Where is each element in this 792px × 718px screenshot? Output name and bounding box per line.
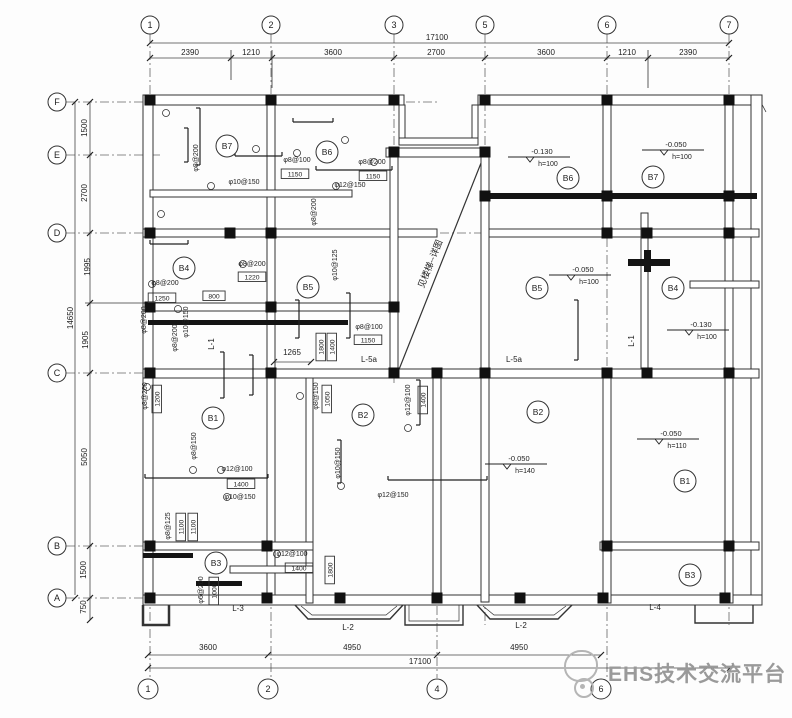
annotation-text: 1500 — [80, 119, 89, 137]
wall — [603, 105, 611, 235]
elevation-depth: h=100 — [579, 279, 599, 286]
elevation-value: -0.050 — [665, 140, 686, 149]
boxed-dim-text: 800 — [208, 294, 220, 301]
annotation-text: φ10@150 — [335, 447, 342, 478]
annotation-text: L-4 — [649, 603, 661, 612]
boxed-dim: 1800 — [325, 556, 335, 584]
porch-outline — [409, 605, 459, 621]
column — [724, 228, 735, 239]
wall — [603, 373, 611, 603]
annotation-text: 4950 — [343, 643, 361, 652]
wall — [472, 105, 478, 143]
elevation-depth: h=100 — [538, 161, 558, 168]
rebar-ref-circle — [297, 393, 304, 400]
elevation-triangle-icon — [526, 157, 534, 162]
annotation-text: φ8@100 — [283, 157, 310, 164]
boxed-dim: 1400 — [327, 333, 337, 361]
boxed-dim: 1150 — [359, 171, 387, 181]
column — [724, 95, 735, 106]
annotation-text: φ8@150 — [191, 432, 198, 459]
annotation-text: L-5a — [506, 355, 523, 364]
annotation-text: φ8@200 — [358, 159, 385, 166]
rebar-ref-circle — [253, 146, 260, 153]
column — [266, 302, 277, 313]
column — [480, 368, 491, 379]
column — [389, 147, 400, 158]
grid-bubble-label: 2 — [268, 20, 273, 30]
column — [225, 228, 236, 239]
wall — [143, 369, 759, 378]
annotation-text: 1995 — [83, 258, 92, 276]
annotation-text: 1210 — [618, 48, 636, 57]
room-label: B1 — [680, 476, 691, 486]
room-label: B3 — [685, 570, 696, 580]
elevation-triangle-icon — [567, 275, 575, 280]
elevation-triangle-icon — [503, 464, 511, 469]
room-label: B5 — [303, 282, 314, 292]
wall — [143, 95, 153, 605]
column — [642, 228, 653, 239]
annotation-text: φ10@125 — [332, 249, 339, 280]
column — [389, 95, 400, 106]
beam-solid — [148, 320, 348, 325]
room-label: B6 — [563, 173, 574, 183]
elevation-triangle-icon — [655, 439, 663, 444]
elevation-value: -0.050 — [572, 265, 593, 274]
room-label: B5 — [532, 283, 543, 293]
wall — [485, 229, 759, 237]
elevation-depth: h=110 — [667, 443, 686, 450]
wall — [399, 138, 478, 145]
boxed-dim-text: 1100 — [179, 519, 186, 534]
annotation-text: φ12@100 — [276, 551, 307, 558]
wall — [386, 148, 489, 157]
annotation-text: φ10@150 — [228, 179, 259, 186]
wall — [267, 105, 275, 595]
annotation-text: 1500 — [79, 561, 88, 579]
annotation-text: 3600 — [199, 643, 217, 652]
annotation-text: L-2 — [515, 621, 527, 630]
wall — [143, 542, 313, 550]
grid-bubble-label: 2 — [265, 684, 270, 694]
column — [602, 95, 613, 106]
column — [432, 368, 443, 379]
column — [515, 593, 526, 604]
column — [432, 593, 443, 604]
annotation-text: 5050 — [80, 448, 89, 466]
annotation-text: 见楼梯--详图 — [415, 238, 444, 289]
annotation-text: 1210 — [242, 48, 260, 57]
grid-bubble-label: E — [54, 150, 60, 160]
annotation-text: 2700 — [80, 184, 89, 202]
annotation-text: 2390 — [181, 48, 199, 57]
column — [145, 95, 156, 106]
boxed-dim-text: 1150 — [288, 172, 303, 179]
annotation-text: φ10@150 — [183, 306, 190, 337]
annotation-text: φ8@200 — [172, 324, 179, 351]
wall — [433, 378, 441, 603]
room-label: B7 — [648, 172, 659, 182]
porch-outline — [143, 605, 169, 625]
annotation-text: φ12@100 — [221, 466, 252, 473]
wall — [725, 105, 733, 603]
rebar-ref-circle — [208, 183, 215, 190]
floor-plan-drawing: 1235671246FEDCBAB7B6B4B5B1B2B3B6B7B5B4B2… — [0, 0, 792, 718]
room-label: B2 — [358, 410, 369, 420]
column — [389, 302, 400, 313]
rebar-ref-circle — [405, 425, 412, 432]
grid-bubble-label: 3 — [391, 20, 396, 30]
boxed-dim: 1100 — [188, 513, 198, 541]
column — [145, 228, 156, 239]
boxed-dim-text: 1400 — [233, 482, 248, 489]
boxed-dim: 1220 — [238, 272, 266, 282]
boxed-dim-text: 1150 — [361, 338, 376, 345]
porch-outline — [301, 606, 397, 615]
elevation-depth: h=140 — [515, 468, 535, 475]
rebar-ref-circle — [294, 150, 301, 157]
grid-bubble-label: C — [54, 368, 61, 378]
annotation-text: 4950 — [510, 643, 528, 652]
structural-plan-canvas: 1235671246FEDCBAB7B6B4B5B1B2B3B6B7B5B4B2… — [0, 0, 792, 718]
watermark: EHS技术交流平台 — [560, 648, 786, 698]
annotation-text: L-3 — [232, 604, 244, 613]
boxed-dim: 1150 — [354, 335, 382, 345]
annotation-text: 17100 — [426, 33, 449, 42]
annotation-text: 1905 — [81, 331, 90, 349]
wall — [399, 105, 405, 143]
boxed-dim: 1400 — [227, 479, 255, 489]
annotation-text: φ8@200 — [311, 198, 318, 225]
wall — [478, 95, 762, 105]
annotation-text: φ6@200 — [198, 576, 205, 603]
boxed-dim-text: 1100 — [191, 519, 198, 534]
annotation-text: 14650 — [66, 306, 75, 329]
elevation-value: -0.050 — [508, 454, 529, 463]
boxed-dim-text: 1800 — [319, 339, 326, 354]
annotation-text: 2700 — [427, 48, 445, 57]
elevation-value: -0.130 — [690, 320, 711, 329]
elevation-triangle-icon — [660, 150, 668, 155]
annotation-text: L-2 — [342, 623, 354, 632]
column — [602, 541, 613, 552]
rebar-ref-circle — [342, 137, 349, 144]
column — [720, 593, 731, 604]
column — [480, 191, 491, 202]
wall — [690, 281, 759, 288]
annotation-text: φ8@200 — [142, 382, 149, 409]
annotation-text: φ8@150 — [313, 382, 320, 409]
annotation-text: L-5a — [361, 355, 378, 364]
boxed-dim-text: 1400 — [421, 392, 428, 407]
annotation-text: 2390 — [679, 48, 697, 57]
column — [724, 191, 735, 202]
boxed-dim: 1800 — [316, 333, 326, 361]
annotation-text: L-1 — [207, 338, 216, 350]
beam-solid — [644, 250, 651, 272]
column — [266, 228, 277, 239]
room-label: B6 — [322, 147, 333, 157]
elevation-depth: h=100 — [672, 154, 692, 161]
room-label: B1 — [208, 413, 219, 423]
grid-bubble-label: D — [54, 228, 61, 238]
rebar-ref-circle — [163, 110, 170, 117]
column — [642, 368, 653, 379]
logo-head-shape — [564, 650, 598, 682]
boxed-dim-text: 1050 — [325, 391, 332, 406]
column — [389, 368, 400, 379]
wall — [150, 190, 352, 197]
column — [335, 593, 346, 604]
elevation-triangle-icon — [685, 330, 693, 335]
porch-outline — [295, 605, 403, 619]
annotation-text: φ8@200 — [141, 306, 148, 333]
boxed-dim-text: 1000 — [212, 583, 219, 598]
rebar-ref-circle — [158, 211, 165, 218]
room-label: B4 — [668, 283, 679, 293]
wall — [751, 95, 762, 605]
logo-dot-shape — [580, 684, 585, 689]
annotation-text: L-1 — [627, 335, 636, 347]
grid-bubble-label: B — [54, 541, 60, 551]
boxed-dim-text: 1400 — [291, 566, 306, 573]
beam-solid — [480, 193, 757, 199]
column — [602, 191, 613, 202]
wall — [390, 150, 398, 378]
annotation-text: φ8@100 — [355, 324, 382, 331]
annotation-text: φ8@200 — [238, 261, 265, 268]
annotation-text: 3600 — [537, 48, 555, 57]
column — [480, 147, 491, 158]
column — [145, 368, 156, 379]
grid-bubble-label: 6 — [604, 20, 609, 30]
wall — [600, 542, 759, 550]
elevation-value: -0.130 — [531, 147, 552, 156]
annotation-text: φ8@200 — [151, 280, 178, 287]
grid-bubble-label: F — [54, 97, 60, 107]
column — [145, 593, 156, 604]
room-label: B2 — [533, 407, 544, 417]
column — [266, 95, 277, 106]
annotation-text: 750 — [79, 600, 88, 614]
watermark-text: EHS技术交流平台 — [608, 658, 786, 688]
boxed-dim-text: 1400 — [330, 339, 337, 354]
boxed-dim: 1150 — [281, 169, 309, 179]
porch-outline — [405, 605, 463, 625]
grid-bubble-label: 4 — [434, 684, 439, 694]
porch-outline — [695, 605, 753, 623]
grid-bubble-label: 7 — [726, 20, 731, 30]
column — [602, 228, 613, 239]
annotation-text: φ12@150 — [334, 182, 365, 189]
grid-bubble-label: 1 — [147, 20, 152, 30]
annotation-text: 3600 — [324, 48, 342, 57]
room-label: B7 — [222, 141, 233, 151]
boxed-dim-text: 1220 — [244, 275, 259, 282]
elevation-value: -0.050 — [660, 429, 681, 438]
boxed-dim-text: 1250 — [154, 296, 169, 303]
room-label: B4 — [179, 263, 190, 273]
grid-bubble-label: 1 — [145, 684, 150, 694]
annotation-text: φ8@125 — [165, 512, 172, 539]
column — [602, 368, 613, 379]
boxed-dim: 1100 — [176, 513, 186, 541]
column — [145, 541, 156, 552]
rebar-ref-circle — [190, 467, 197, 474]
column — [724, 541, 735, 552]
annotation-text: 1265 — [283, 348, 301, 357]
column — [262, 541, 273, 552]
grid-bubble-label: 5 — [482, 20, 487, 30]
watermark-logo-icon — [560, 648, 604, 698]
annotation-text: φ8@200 — [193, 144, 200, 171]
annotation-text: φ10@150 — [224, 494, 255, 501]
boxed-dim: 1050 — [322, 385, 332, 413]
column — [724, 368, 735, 379]
boxed-dim-text: 1150 — [366, 174, 381, 181]
elevation-depth: h=100 — [697, 334, 717, 341]
annotation-text: φ12@100 — [405, 384, 412, 415]
column — [598, 593, 609, 604]
column — [480, 95, 491, 106]
grid-bubble-label: A — [54, 593, 60, 603]
annotation-text: φ12@150 — [377, 492, 408, 499]
drawing-line — [398, 153, 485, 372]
column — [266, 368, 277, 379]
column — [262, 593, 273, 604]
room-label: B3 — [211, 558, 222, 568]
boxed-dim-text: 1200 — [155, 391, 162, 406]
beam-solid — [143, 553, 193, 558]
annotation-text: 17100 — [409, 657, 432, 666]
boxed-dim-text: 1800 — [328, 562, 335, 577]
boxed-dim: 800 — [203, 291, 225, 301]
porch-outline — [483, 606, 566, 615]
